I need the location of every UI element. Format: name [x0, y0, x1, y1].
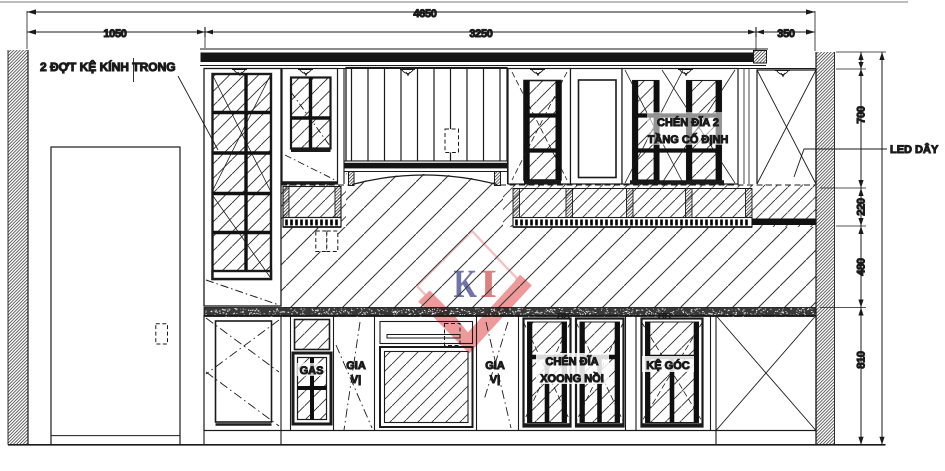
svg-text:CHÉN ĐĨA 2: CHÉN ĐĨA 2 — [657, 116, 719, 129]
svg-text:4650: 4650 — [413, 8, 436, 20]
svg-text:TẦNG CỐ ĐỊNH: TẦNG CỐ ĐỊNH — [648, 133, 729, 146]
svg-text:VỊ: VỊ — [490, 374, 500, 386]
svg-text:GAS: GAS — [300, 365, 324, 377]
svg-text:CHÉN ĐĨA: CHÉN ĐĨA — [545, 355, 598, 368]
svg-text:3250: 3250 — [469, 28, 492, 40]
svg-text:GIA: GIA — [485, 360, 505, 372]
svg-text:810: 810 — [856, 351, 868, 369]
svg-text:XOONG NỒI: XOONG NỒI — [540, 372, 604, 385]
svg-text:700: 700 — [856, 106, 868, 124]
svg-text:1050: 1050 — [103, 28, 126, 40]
svg-text:VỊ: VỊ — [351, 374, 361, 386]
svg-text:KỆ GÓC: KỆ GÓC — [646, 359, 689, 372]
svg-text:480: 480 — [856, 258, 868, 276]
svg-text:GIA: GIA — [346, 360, 366, 372]
svg-text:350: 350 — [777, 28, 795, 40]
svg-text:2 ĐỢT KỆ KÍNH TRONG: 2 ĐỢT KỆ KÍNH TRONG — [40, 60, 176, 74]
svg-text:LED DÂY: LED DÂY — [890, 143, 939, 156]
svg-text:220: 220 — [856, 198, 868, 216]
